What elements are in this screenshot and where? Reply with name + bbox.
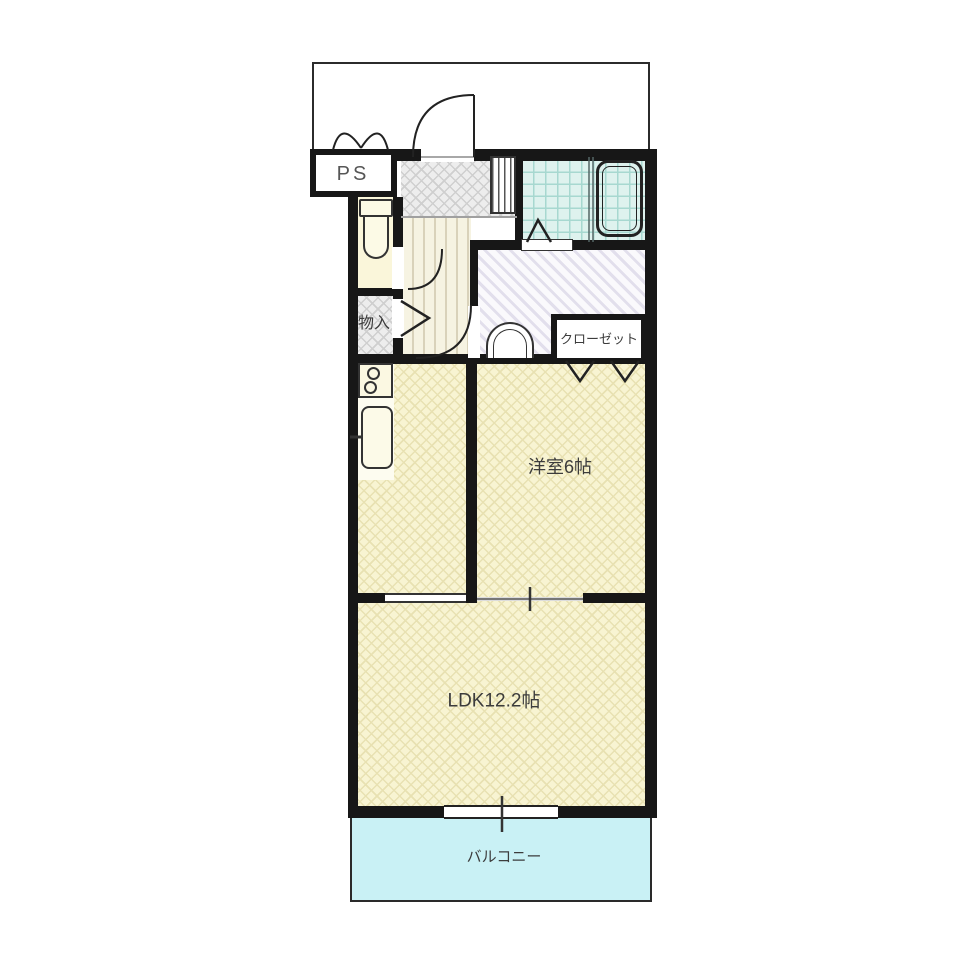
floor-plan: PS 物入 クローゼット 洋室6帖 LDK12.2帖 バルコニー <box>0 0 960 960</box>
toilet-door-opening <box>392 247 404 289</box>
wall-divider-right <box>583 593 657 603</box>
genkan-step-line <box>401 216 517 218</box>
kitchen-sink-icon <box>361 406 393 469</box>
entrance-opening <box>421 148 474 162</box>
toilet-bowl-icon <box>363 217 389 259</box>
wall-divider-left <box>348 593 385 603</box>
storage-door-opening <box>392 299 404 338</box>
sliding-opening-dining-ldk <box>385 593 466 603</box>
storage-label: 物入 <box>358 316 390 332</box>
closet-label: クローゼット <box>560 333 638 346</box>
ldk-label: LDK12.2帖 <box>448 692 541 711</box>
wall-left <box>348 190 358 818</box>
wall-toilet-bottom <box>348 288 403 296</box>
stove-burner-icon <box>364 381 377 394</box>
bathtub-icon <box>596 160 643 237</box>
hallway <box>401 218 471 358</box>
entry-porch-outline <box>312 62 650 160</box>
wall-genkan-bath <box>515 149 523 250</box>
balcony-label: バルコニー <box>467 850 542 865</box>
shoe-cabinet <box>490 156 516 214</box>
entrance-threshold <box>421 156 474 158</box>
wall-hall-washroom <box>470 244 478 308</box>
wall-top-left <box>393 149 423 161</box>
western-room <box>475 362 647 597</box>
stove-burner-icon <box>367 367 380 380</box>
toilet-tank-icon <box>359 199 393 217</box>
ldk-window <box>444 805 558 819</box>
western-room-label: 洋室6帖 <box>528 458 592 476</box>
ps-label: PS <box>337 164 370 184</box>
bathroom-door-opening <box>521 239 573 251</box>
washroom-door-opening <box>468 306 480 358</box>
wall-kitchen-western <box>466 358 477 603</box>
